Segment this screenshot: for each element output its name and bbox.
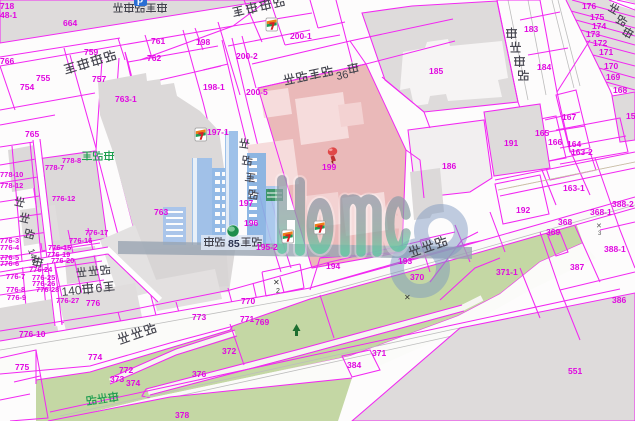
svg-text:551: 551	[568, 366, 582, 376]
svg-text:776-4: 776-4	[0, 243, 20, 252]
svg-text:197-1: 197-1	[207, 127, 229, 137]
svg-text:769: 769	[255, 317, 269, 327]
svg-text:386: 386	[612, 295, 626, 305]
svg-text:198: 198	[196, 37, 210, 47]
svg-text:778-12: 778-12	[0, 181, 23, 190]
svg-text:197: 197	[239, 198, 253, 208]
svg-text:✕: ✕	[404, 293, 411, 302]
svg-text:776-20: 776-20	[51, 256, 74, 265]
svg-text:85: 85	[228, 238, 240, 250]
svg-text:2: 2	[276, 288, 280, 295]
svg-text:48-1: 48-1	[0, 10, 17, 20]
svg-text:370: 370	[410, 272, 424, 282]
svg-text:368: 368	[558, 217, 572, 227]
svg-text:778-7: 778-7	[45, 163, 64, 172]
svg-text:759: 759	[84, 47, 98, 57]
svg-text:163-1: 163-1	[563, 183, 585, 193]
svg-text:176: 176	[582, 1, 596, 11]
svg-text:755: 755	[36, 73, 50, 83]
svg-text:762: 762	[147, 53, 161, 63]
svg-text:368-1: 368-1	[590, 207, 612, 217]
svg-text:765: 765	[25, 129, 39, 139]
svg-text:200-1: 200-1	[290, 31, 312, 41]
svg-text:778-8: 778-8	[62, 156, 81, 165]
svg-text:388-2: 388-2	[612, 199, 634, 209]
svg-text:778-10: 778-10	[0, 170, 23, 179]
svg-text:371-1: 371-1	[496, 267, 518, 277]
svg-text:199: 199	[322, 162, 336, 172]
svg-text:776-9: 776-9	[7, 293, 26, 302]
svg-text:776-28: 776-28	[36, 285, 59, 294]
svg-text:776-7: 776-7	[6, 272, 25, 281]
svg-text:773: 773	[192, 312, 206, 322]
svg-text:194: 194	[326, 261, 340, 271]
svg-text:186: 186	[442, 161, 456, 171]
svg-text:776: 776	[86, 298, 100, 308]
svg-text:774: 774	[88, 352, 102, 362]
svg-text:170: 170	[604, 61, 618, 71]
svg-text:766: 766	[0, 56, 14, 66]
svg-text:192: 192	[516, 205, 530, 215]
svg-text:374: 374	[126, 378, 140, 388]
svg-text:✕: ✕	[596, 223, 602, 230]
svg-text:371: 371	[372, 348, 386, 358]
svg-text:195-2: 195-2	[256, 242, 278, 252]
svg-text:167: 167	[562, 112, 576, 122]
svg-text:36: 36	[335, 69, 349, 83]
svg-text:388-1: 388-1	[604, 244, 626, 254]
svg-text:776-6: 776-6	[0, 259, 19, 268]
svg-text:763-1: 763-1	[115, 94, 137, 104]
svg-text:369: 369	[546, 227, 560, 237]
svg-text:373: 373	[110, 374, 124, 384]
svg-text:771: 771	[240, 314, 254, 324]
svg-text:198-1: 198-1	[203, 82, 225, 92]
svg-text:763: 763	[154, 207, 168, 217]
svg-text:378: 378	[175, 410, 189, 420]
svg-text:171: 171	[599, 47, 613, 57]
svg-text:196: 196	[244, 218, 258, 228]
svg-text:770: 770	[241, 296, 255, 306]
svg-text:776-27: 776-27	[56, 296, 79, 305]
svg-text:185: 185	[429, 66, 443, 76]
svg-text:384: 384	[347, 360, 361, 370]
svg-text:169: 169	[606, 72, 620, 82]
svg-text:166: 166	[548, 137, 562, 147]
svg-text:776-12: 776-12	[52, 194, 75, 203]
svg-text:776-10: 776-10	[19, 329, 46, 339]
svg-text:200-5: 200-5	[246, 87, 268, 97]
svg-text:P: P	[137, 0, 143, 7]
svg-text:776-16: 776-16	[69, 236, 92, 245]
svg-text:200-2: 200-2	[236, 51, 258, 61]
svg-text:183: 183	[524, 24, 538, 34]
svg-text:193: 193	[398, 256, 412, 266]
svg-text:372: 372	[222, 346, 236, 356]
svg-text:387: 387	[570, 262, 584, 272]
svg-text:168: 168	[613, 85, 627, 95]
svg-text:664: 664	[63, 18, 77, 28]
svg-text:761: 761	[151, 36, 165, 46]
svg-text:754: 754	[20, 82, 34, 92]
svg-text:191: 191	[504, 138, 518, 148]
svg-text:376: 376	[192, 369, 206, 379]
svg-text:15: 15	[626, 111, 635, 121]
svg-text:163-2: 163-2	[571, 147, 593, 157]
svg-text:✕: ✕	[273, 278, 280, 287]
svg-text:775: 775	[15, 362, 29, 372]
svg-text:757: 757	[92, 74, 106, 84]
svg-text:184: 184	[537, 62, 551, 72]
